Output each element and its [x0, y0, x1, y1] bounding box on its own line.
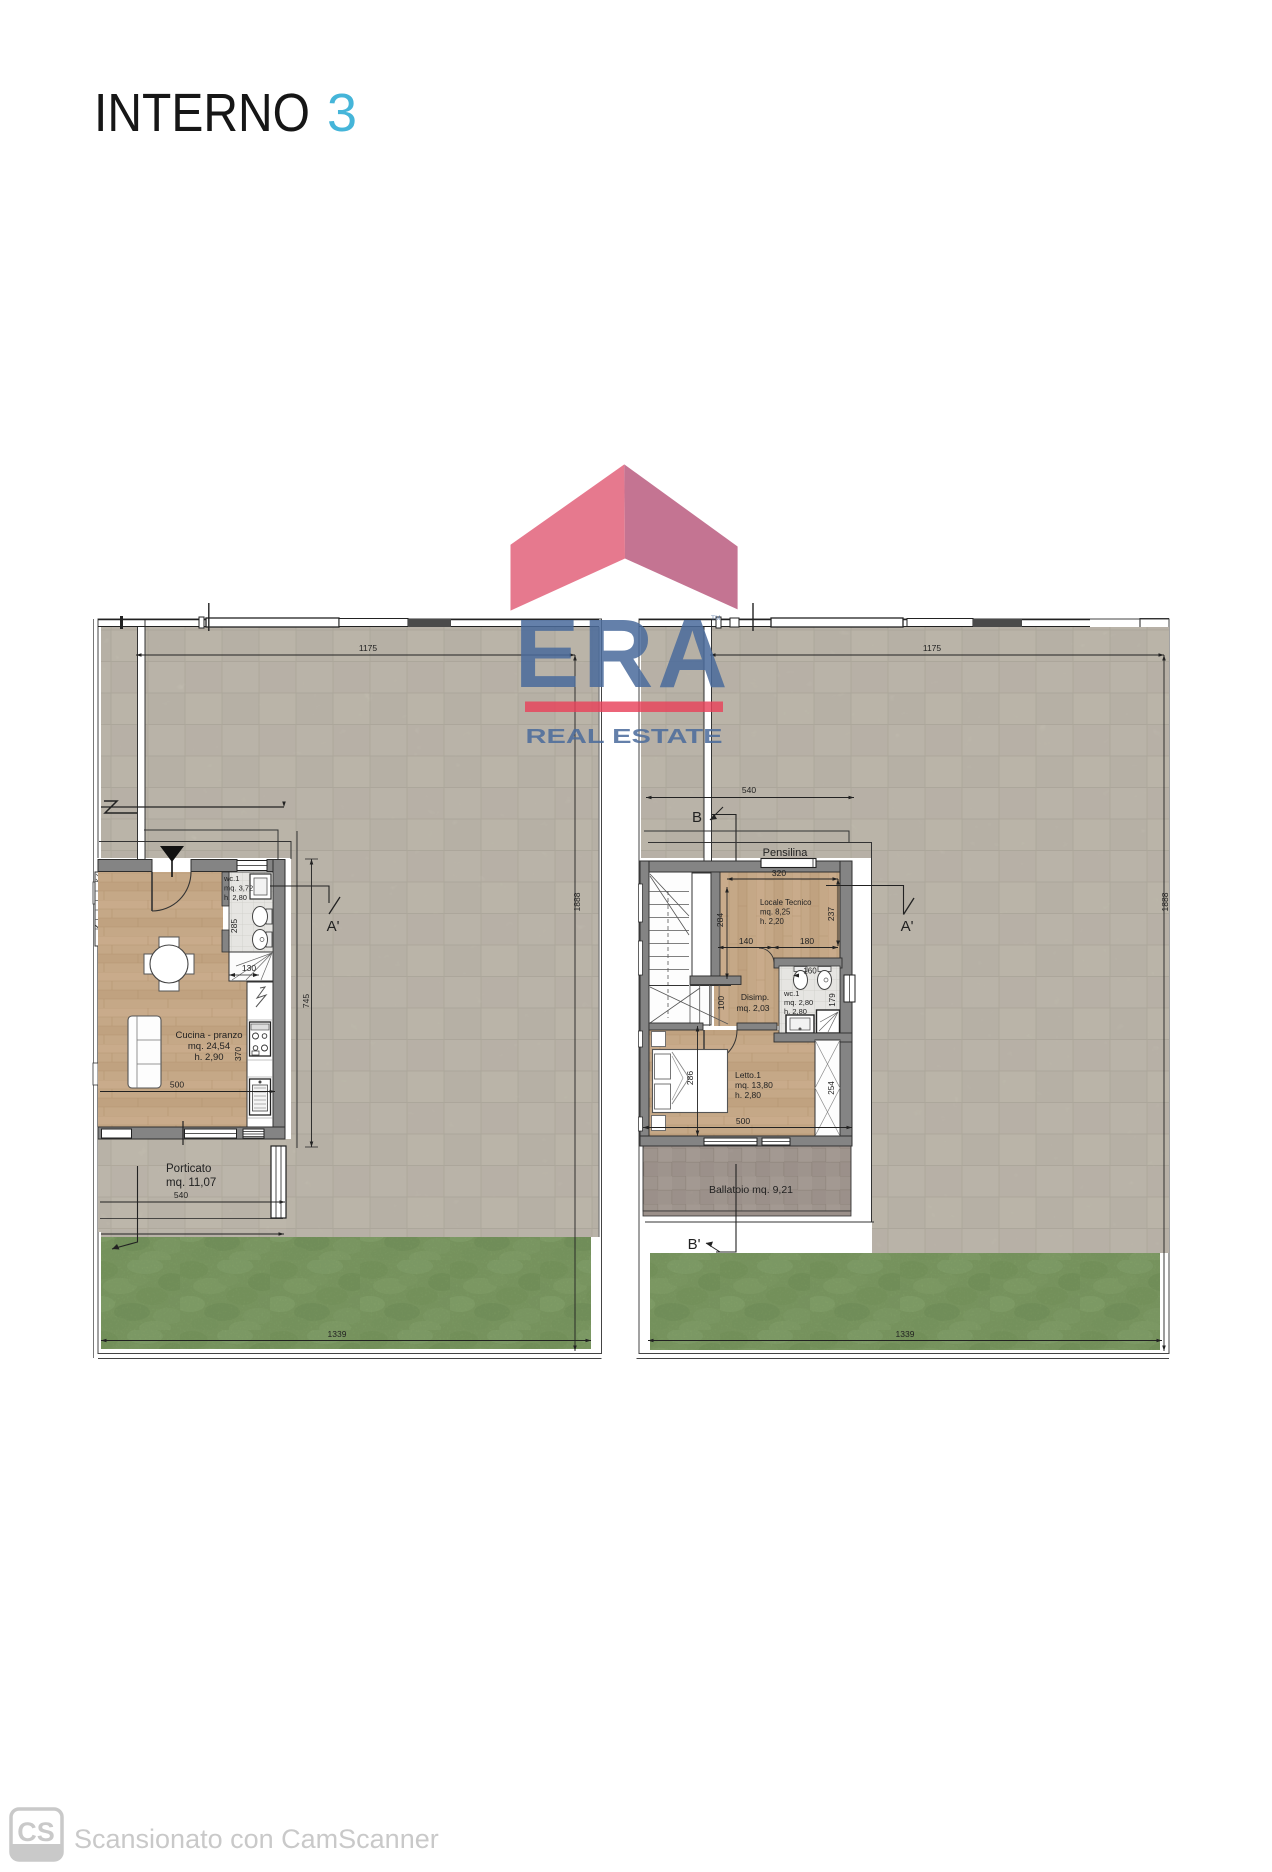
svg-text:500: 500 — [736, 1116, 750, 1126]
svg-text:INTERNO: INTERNO — [94, 83, 310, 143]
svg-text:1888: 1888 — [1160, 892, 1170, 911]
svg-text:mq. 11,07: mq. 11,07 — [166, 1177, 216, 1189]
svg-text:Scansionato con CamScanner: Scansionato con CamScanner — [74, 1824, 439, 1854]
svg-text:284: 284 — [715, 913, 725, 927]
svg-text:h. 2,80: h. 2,80 — [735, 1090, 761, 1100]
svg-text:Pensilina: Pensilina — [763, 847, 809, 859]
svg-text:CS: CS — [17, 1817, 55, 1847]
svg-text:Locale Tecnico: Locale Tecnico — [760, 898, 812, 907]
svg-text:Porticato: Porticato — [166, 1163, 211, 1175]
svg-text:mq. 3,72: mq. 3,72 — [224, 884, 253, 893]
svg-text:mq. 24,54: mq. 24,54 — [188, 1041, 230, 1052]
svg-text:REAL ESTATE: REAL ESTATE — [526, 725, 723, 748]
svg-text:370: 370 — [233, 1047, 243, 1061]
svg-text:320: 320 — [772, 868, 786, 878]
svg-text:130: 130 — [242, 963, 256, 973]
svg-text:160: 160 — [803, 967, 817, 976]
svg-text:mq. 13,80: mq. 13,80 — [735, 1080, 773, 1090]
svg-text:1339: 1339 — [896, 1329, 915, 1339]
svg-text:500: 500 — [170, 1080, 184, 1090]
svg-text:3: 3 — [327, 83, 357, 143]
svg-text:mq. 2,80: mq. 2,80 — [784, 998, 813, 1007]
svg-text:h. 2,90: h. 2,90 — [194, 1052, 223, 1063]
svg-text:179: 179 — [828, 993, 837, 1007]
svg-text:mq. 8,25: mq. 8,25 — [760, 908, 791, 917]
svg-text:237: 237 — [826, 907, 836, 921]
svg-text:540: 540 — [174, 1190, 188, 1200]
svg-text:285: 285 — [229, 919, 239, 933]
svg-text:180: 180 — [800, 936, 814, 946]
svg-text:mq. 2,03: mq. 2,03 — [736, 1003, 769, 1013]
svg-text:Cucina - pranzo: Cucina - pranzo — [175, 1030, 242, 1041]
svg-text:B': B' — [688, 1236, 701, 1253]
svg-text:1175: 1175 — [923, 643, 942, 653]
svg-text:A': A' — [901, 918, 914, 935]
svg-text:1339: 1339 — [328, 1329, 347, 1339]
svg-text:100: 100 — [716, 996, 726, 1010]
svg-text:h. 2,20: h. 2,20 — [760, 917, 785, 926]
svg-text:540: 540 — [742, 785, 756, 795]
svg-text:1175: 1175 — [359, 643, 378, 653]
svg-text:286: 286 — [685, 1071, 695, 1085]
svg-text:Ballatoio mq. 9,21: Ballatoio mq. 9,21 — [709, 1184, 793, 1196]
svg-text:Disimp.: Disimp. — [741, 992, 769, 1002]
svg-text:h. 2,80: h. 2,80 — [224, 893, 247, 902]
svg-text:TM: TM — [711, 615, 720, 622]
svg-text:ERA: ERA — [515, 599, 732, 708]
svg-text:Letto.1: Letto.1 — [735, 1070, 761, 1080]
svg-text:254: 254 — [827, 1081, 836, 1095]
svg-text:745: 745 — [301, 994, 311, 1008]
svg-text:B: B — [692, 809, 702, 826]
svg-text:140: 140 — [739, 936, 753, 946]
svg-text:wc.1: wc.1 — [783, 989, 799, 998]
svg-text:1888: 1888 — [572, 892, 582, 911]
svg-text:A': A' — [327, 918, 340, 935]
svg-text:wc.1: wc.1 — [223, 874, 239, 883]
